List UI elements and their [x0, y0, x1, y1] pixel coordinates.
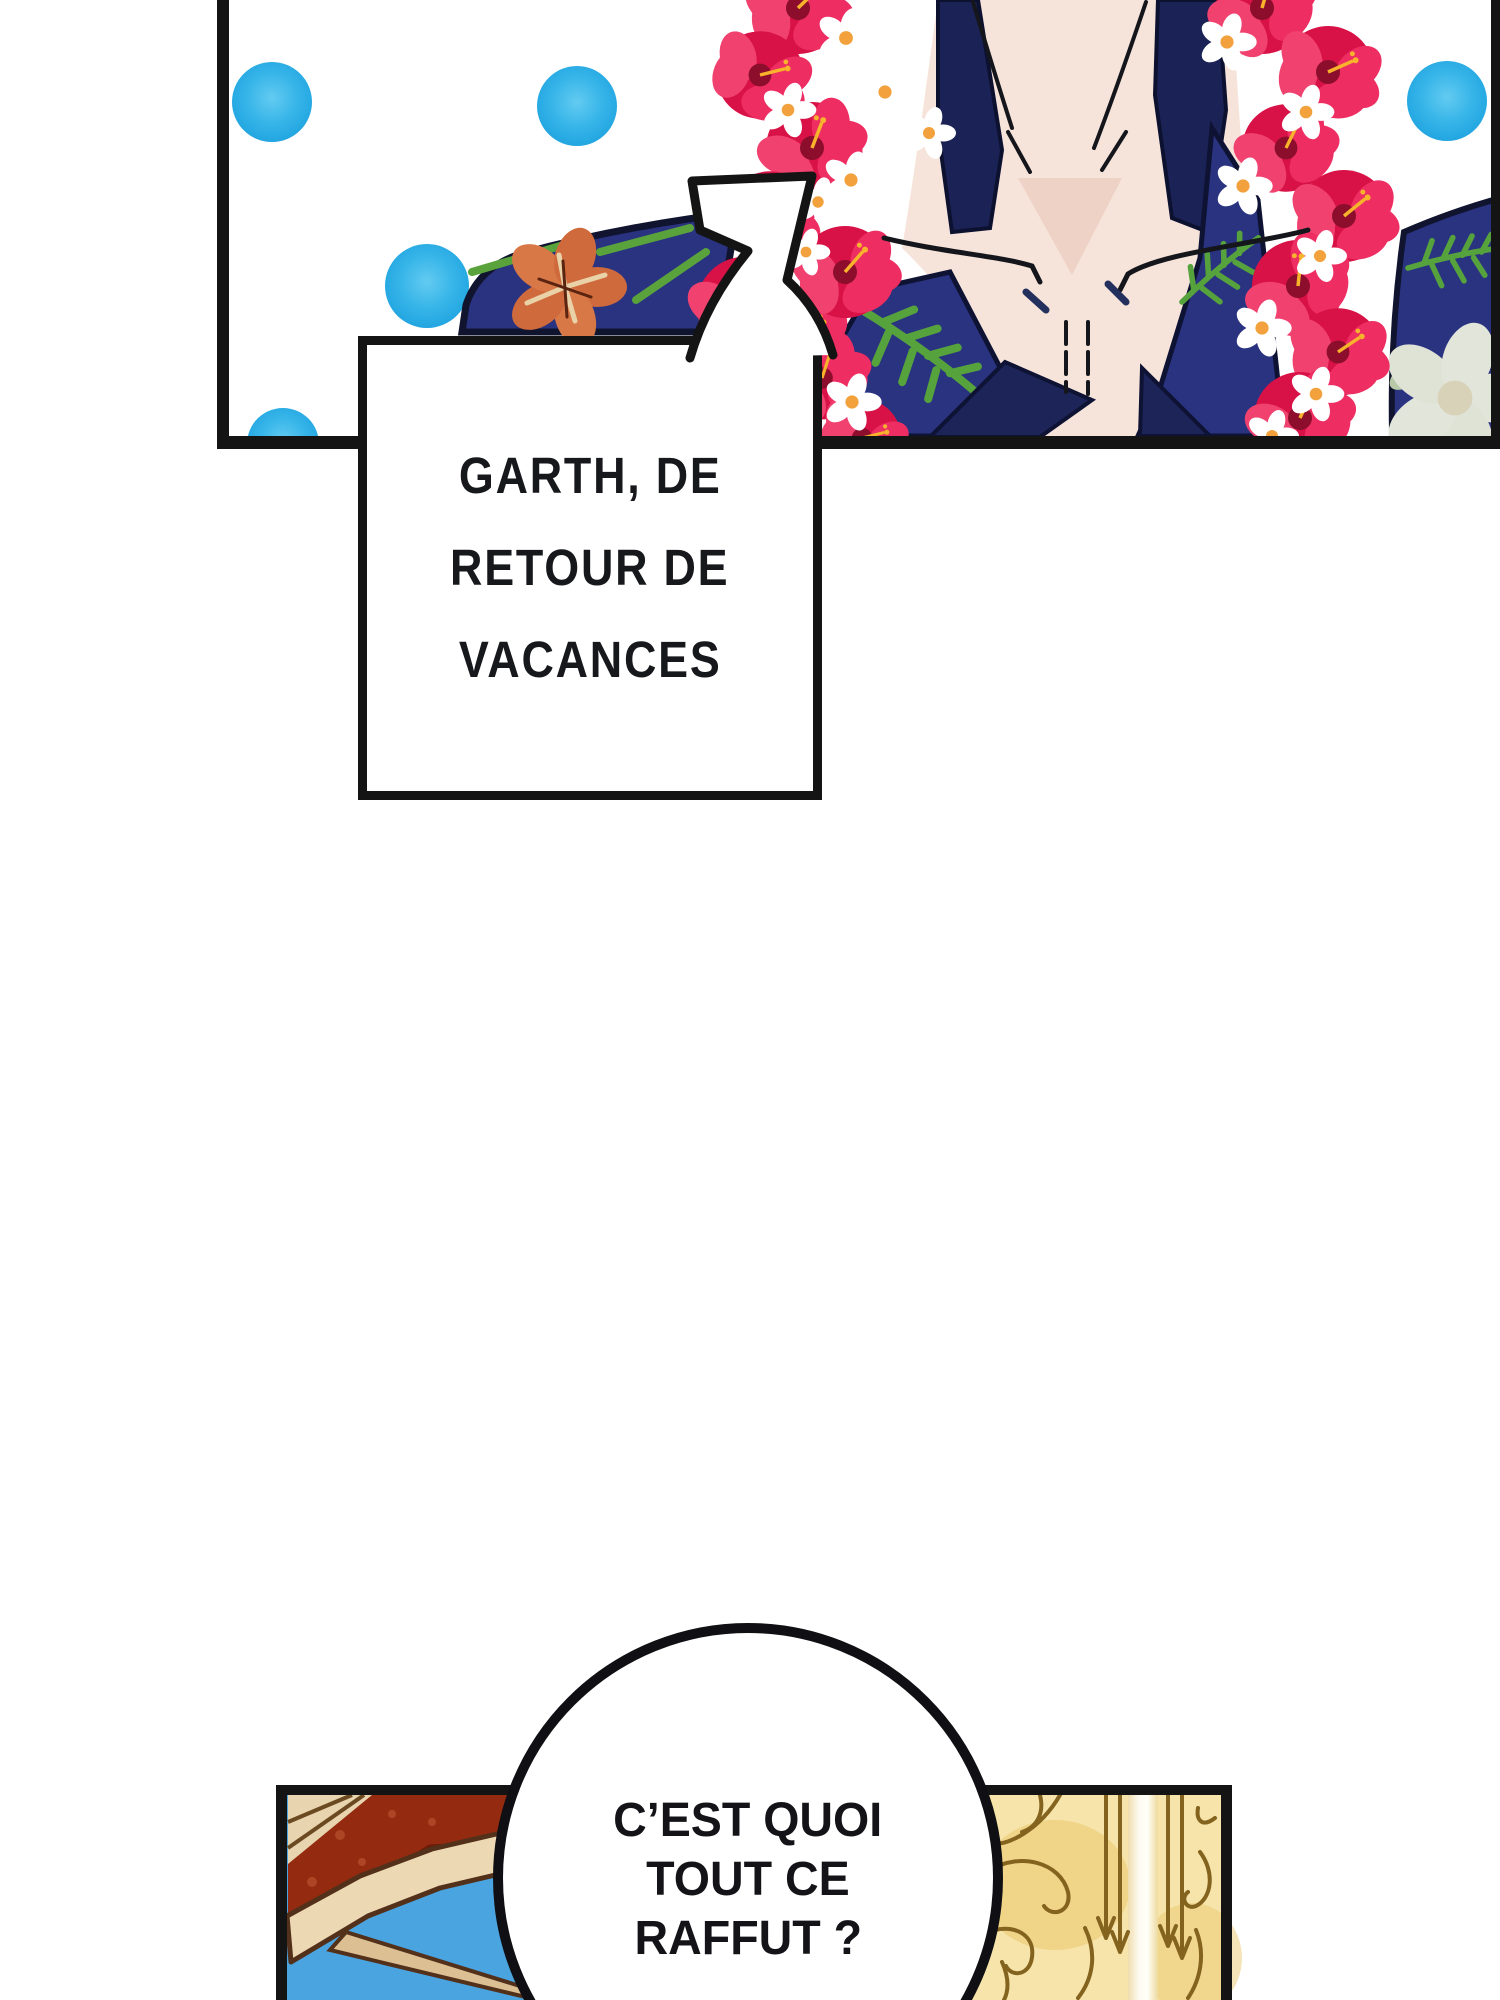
speech-bubble-line: RAFFUT ? [634, 1909, 862, 1968]
caption-line: GARTH, DE [459, 430, 722, 522]
speech-bubble-line: C’EST QUOI [613, 1791, 882, 1850]
caption-box: GARTH, DE RETOUR DE VACANCES [358, 336, 822, 800]
polka-dot [1407, 61, 1487, 141]
speech-bubble-text: C’EST QUOI TOUT CE RAFFUT ? [518, 1772, 978, 1987]
polka-dot [537, 66, 617, 146]
webtoon-page: GARTH, DE RETOUR DE VACANCES [0, 0, 1500, 2000]
polka-dot [232, 62, 312, 142]
arrow-icon [600, 150, 860, 380]
speech-bubble-line: TOUT CE [646, 1850, 850, 1909]
polka-dot [385, 244, 469, 328]
caption-line: VACANCES [459, 614, 722, 706]
caption-line: RETOUR DE [450, 522, 729, 614]
